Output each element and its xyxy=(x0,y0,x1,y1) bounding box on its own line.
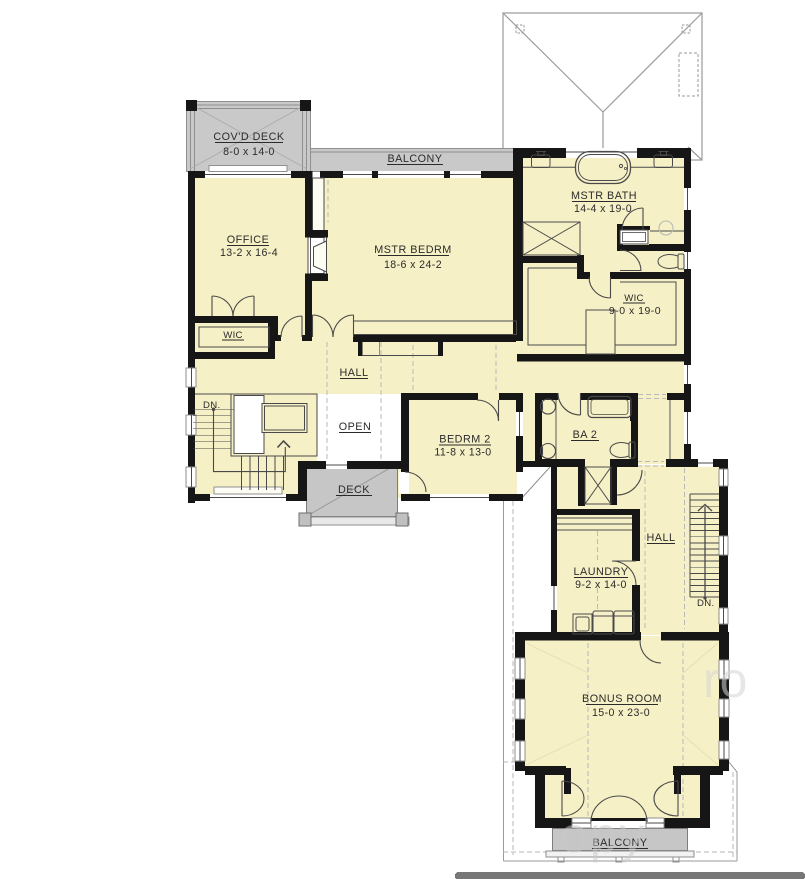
svg-text:OPEN: OPEN xyxy=(339,421,372,433)
svg-text:MSTR BEDRM: MSTR BEDRM xyxy=(374,244,452,256)
svg-text:WIC: WIC xyxy=(223,330,243,341)
svg-text:ro: ro xyxy=(703,652,747,708)
svg-text:DN.: DN. xyxy=(203,400,220,411)
svg-text:HALL: HALL xyxy=(339,367,368,379)
svg-text:LAUNDRY: LAUNDRY xyxy=(574,566,629,578)
svg-text:COV'D DECK: COV'D DECK xyxy=(213,131,285,143)
svg-text:MSTR BATH: MSTR BATH xyxy=(571,190,637,202)
svg-text:14-4 x 19-0: 14-4 x 19-0 xyxy=(574,203,632,215)
svg-text:9-0 x 19-0: 9-0 x 19-0 xyxy=(609,305,661,317)
svg-text:DECK: DECK xyxy=(338,484,370,496)
svg-text:HALL: HALL xyxy=(646,532,675,544)
svg-text:opy: opy xyxy=(560,807,647,863)
svg-text:18-6 x 24-2: 18-6 x 24-2 xyxy=(384,259,442,271)
svg-text:13-2 x 16-4: 13-2 x 16-4 xyxy=(220,247,278,259)
svg-text:BALCONY: BALCONY xyxy=(387,153,442,165)
svg-text:OFFICE: OFFICE xyxy=(227,234,270,246)
svg-text:BEDRM 2: BEDRM 2 xyxy=(439,434,491,446)
svg-text:WIC: WIC xyxy=(624,293,644,304)
svg-text:BONUS ROOM: BONUS ROOM xyxy=(582,693,662,705)
svg-text:DN.: DN. xyxy=(697,598,714,609)
svg-text:8-0 x 14-0: 8-0 x 14-0 xyxy=(223,146,275,158)
svg-text:9-2 x 14-0: 9-2 x 14-0 xyxy=(575,579,627,591)
svg-text:BA 2: BA 2 xyxy=(573,429,598,441)
svg-text:11-8 x 13-0: 11-8 x 13-0 xyxy=(434,447,491,459)
svg-text:15-0 x 23-0: 15-0 x 23-0 xyxy=(592,707,650,719)
